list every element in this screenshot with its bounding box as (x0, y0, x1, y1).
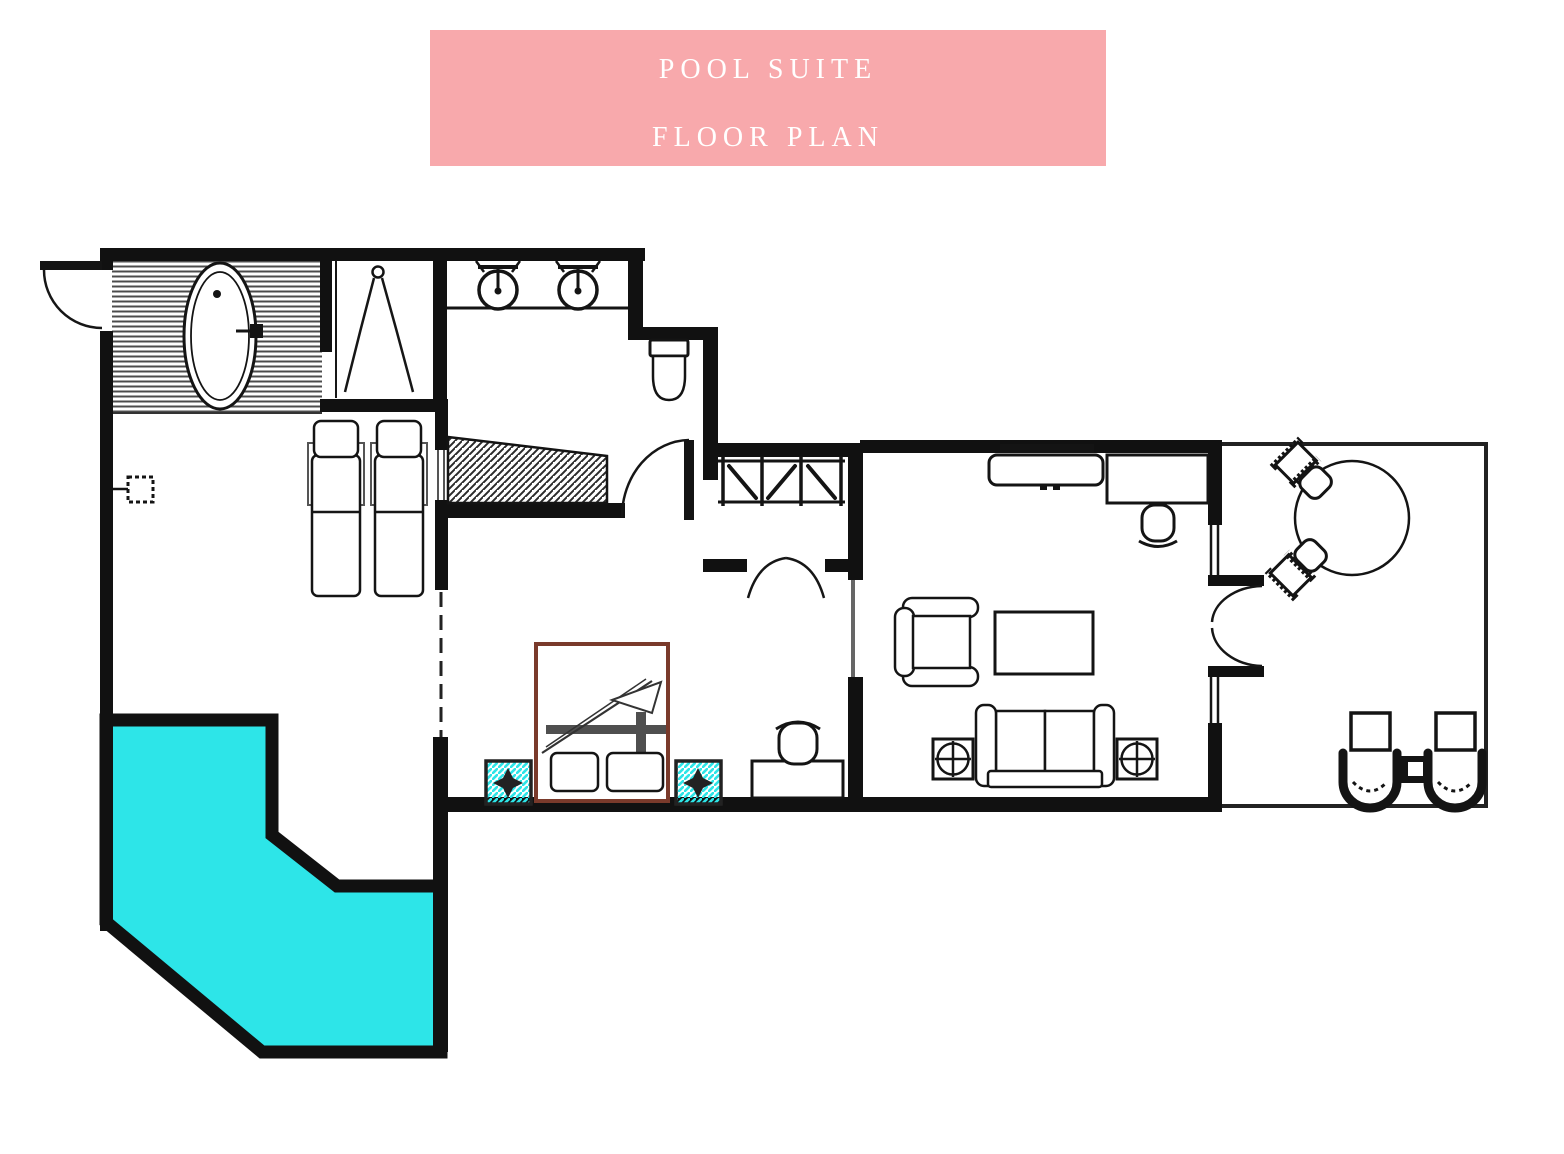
bedroom-desk (752, 722, 843, 798)
entry-door-leaf (40, 261, 102, 270)
shower (336, 260, 413, 398)
sun-lounger-left (308, 421, 364, 596)
nightstand-left (486, 761, 531, 804)
wall-bedroom-west-a (435, 412, 448, 450)
entry-door-swing (44, 270, 102, 328)
wall-vanity-right (628, 248, 643, 340)
tub-drain (213, 290, 221, 298)
pool-water (106, 720, 441, 1052)
wall-pool-side (433, 737, 448, 1052)
bedroom-desk-chair (779, 723, 817, 764)
living-desk (1107, 455, 1208, 547)
wall-bathroom-bottom (443, 503, 625, 518)
hanging-clothes-icon (768, 466, 795, 498)
pool-suite-floor-plan: POOL SUITE FLOOR PLAN (0, 0, 1564, 1154)
wall-wardrobe-bottom-right (825, 559, 849, 572)
wall-corridor (703, 327, 718, 480)
sun-lounger-right (371, 421, 427, 596)
luggage-bench-hatched (448, 437, 607, 503)
wicker-chair-right (1428, 713, 1482, 808)
tub-faucet (250, 324, 263, 338)
bathroom-door (622, 440, 694, 520)
wall-door-stub-top (1208, 575, 1264, 586)
sofa-cushion (1045, 711, 1094, 773)
armchair-seat (913, 616, 970, 668)
pillow-right (607, 753, 663, 791)
tv-console (989, 455, 1103, 485)
outdoor-shower-fixture (113, 477, 153, 502)
banner-title-line1: POOL SUITE (659, 54, 877, 85)
banner-title-line2: FLOOR PLAN (652, 122, 884, 153)
wall-left-main (100, 331, 113, 931)
terrace-french-doors (1212, 586, 1262, 666)
wardrobe-double-door (748, 558, 824, 598)
sofa-cushion (996, 711, 1045, 773)
hanging-clothes-icon (729, 466, 756, 498)
nightstand-right (676, 761, 721, 804)
ottoman (1436, 713, 1475, 750)
wall-divider-upper (848, 443, 863, 580)
tv-screen (1000, 444, 1094, 453)
tv-unit (989, 444, 1103, 490)
living-window-top (1211, 525, 1218, 575)
wall-shower-right (433, 248, 447, 412)
floor-plan (40, 248, 1488, 1052)
bed (536, 644, 668, 801)
living-window-bottom (1211, 677, 1218, 723)
wall-living-bottom (860, 797, 1222, 812)
wall-under-shower (320, 399, 448, 412)
armchair (895, 598, 978, 686)
title-banner: POOL SUITE FLOOR PLAN (430, 30, 1106, 166)
wall-door-stub-bottom (1208, 666, 1264, 677)
wall-wardrobe-bottom-left (703, 559, 747, 572)
side-table-right (1117, 739, 1157, 779)
entry-door (40, 261, 102, 328)
wicker-chair-left (1343, 713, 1397, 808)
partition-glass (851, 580, 855, 677)
swimming-pool (106, 720, 441, 1052)
terrace (1222, 439, 1488, 808)
wall-divider-lower (848, 677, 863, 812)
sofa-back (988, 771, 1102, 787)
bedroom-west-window (435, 450, 448, 500)
ottoman (1351, 713, 1390, 750)
shower-head (373, 267, 384, 278)
hanging-clothes-icon (808, 466, 835, 498)
bed-runner (546, 725, 666, 734)
office-chair (1142, 505, 1174, 541)
wall-wardrobe-top (703, 443, 863, 457)
vanity (447, 261, 628, 309)
wall-top (100, 248, 645, 261)
pillow-left (551, 753, 598, 791)
bathroom-door-swing (622, 440, 689, 517)
bathroom-door-leaf (684, 440, 694, 520)
terrace-side-table (1400, 756, 1431, 783)
sink-left (476, 261, 520, 309)
toilet (650, 340, 688, 400)
coffee-table (995, 612, 1093, 674)
sofa (976, 705, 1114, 787)
wall-living-right-a (1208, 440, 1222, 525)
side-table-left (933, 739, 973, 779)
sink-right (556, 261, 600, 309)
wardrobe-closet (718, 456, 845, 506)
wall-deck-shower (320, 255, 332, 352)
